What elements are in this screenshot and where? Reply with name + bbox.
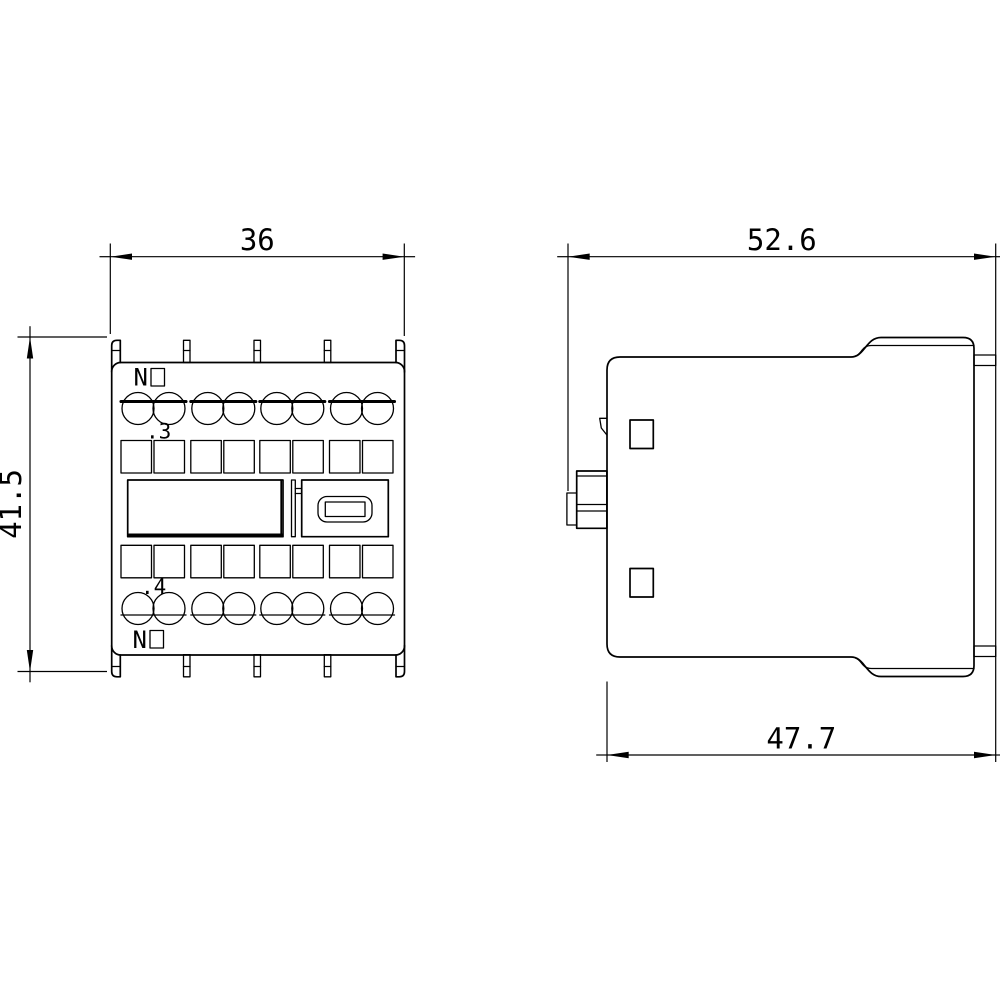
dim-front-width: 36 [100,223,416,336]
dim-52-6-label: 52.6 [747,223,817,257]
tab-top-mid [254,340,261,362]
side-view [567,338,996,677]
dim-front-height: 41.5 [0,326,107,682]
dim-41-5-label: 41.5 [0,469,28,539]
clamp-opening [121,441,152,474]
arrowhead [974,254,996,260]
screw-terminal-top [331,393,363,425]
screw-terminal-bottom [223,593,255,625]
dim-36-label: 36 [240,223,275,257]
dimension-drawing-page: N .3 .4 N 36 41.5 [0,0,1000,1000]
screw-terminal-top [192,393,224,425]
tab-bottom-mid [254,655,261,677]
no-square-top [151,369,165,387]
clamp-opening [363,545,394,578]
clamp-opening [293,441,324,474]
clamp-opening [154,441,185,474]
arrowhead [383,254,405,260]
tab-bottom-mid [324,655,331,677]
no-label-top: N [134,364,148,392]
release-button-outer [318,497,372,523]
mid-tabs [184,340,331,677]
screw-terminal-bottom [331,593,363,625]
rear-tab-bottom [974,646,996,657]
no-square-bottom [150,631,164,649]
clamp-opening [224,441,255,474]
mounting-clip [577,471,607,528]
screw-terminal-bottom [261,593,293,625]
side-body-outline [607,338,974,677]
clamp-opening [330,441,361,474]
clamp-opening [121,545,152,578]
dim-side-depth: 47.7 [596,682,1000,763]
side-window-top [630,420,653,449]
clamp-opening [191,545,222,578]
label-plate [128,480,283,537]
no-label-bottom: N [133,626,147,654]
dimension-drawing: N .3 .4 N 36 41.5 [0,0,1000,1000]
screw-terminal-bottom [292,593,324,625]
release-button-inner [325,502,365,517]
front-hook [600,418,607,435]
clamp-opening [293,545,324,578]
screw-terminal-bottom [192,593,224,625]
side-step-edge-bottom [856,658,975,669]
screw-terminal-top [223,393,255,425]
clip-catch [567,493,577,525]
tab-top-mid [324,340,331,362]
screw-terminal-top [362,393,394,425]
terminal-label-top: .3 [146,420,171,444]
clamp-opening [330,545,361,578]
arrowhead [974,752,996,758]
arrowhead [110,254,132,260]
arrowhead [27,650,33,672]
clamp-opening [363,441,394,474]
arrowhead [568,254,590,260]
arrowhead [27,337,33,359]
clamp-opening [260,441,291,474]
screw-terminal-bottom [362,593,394,625]
screw-terminal-top [292,393,324,425]
clamp-opening [191,441,222,474]
terminal-label-bottom: .4 [141,575,166,599]
arrowhead [607,752,629,758]
side-step-edge-top [856,346,975,357]
rear-tab-top [974,355,996,366]
button-housing [302,480,389,537]
front-view: N .3 .4 N [112,340,405,677]
clamp-opening [224,545,255,578]
tab-bottom-mid [184,655,191,677]
dim-47-7-label: 47.7 [766,722,836,756]
side-window-bottom [630,569,653,598]
clamp-opening [154,545,185,578]
front-body-outline [112,363,405,656]
tab-top-mid [184,340,191,362]
screw-terminal-top [261,393,293,425]
dim-side-overall: 52.6 [557,223,1000,762]
clamp-opening [260,545,291,578]
